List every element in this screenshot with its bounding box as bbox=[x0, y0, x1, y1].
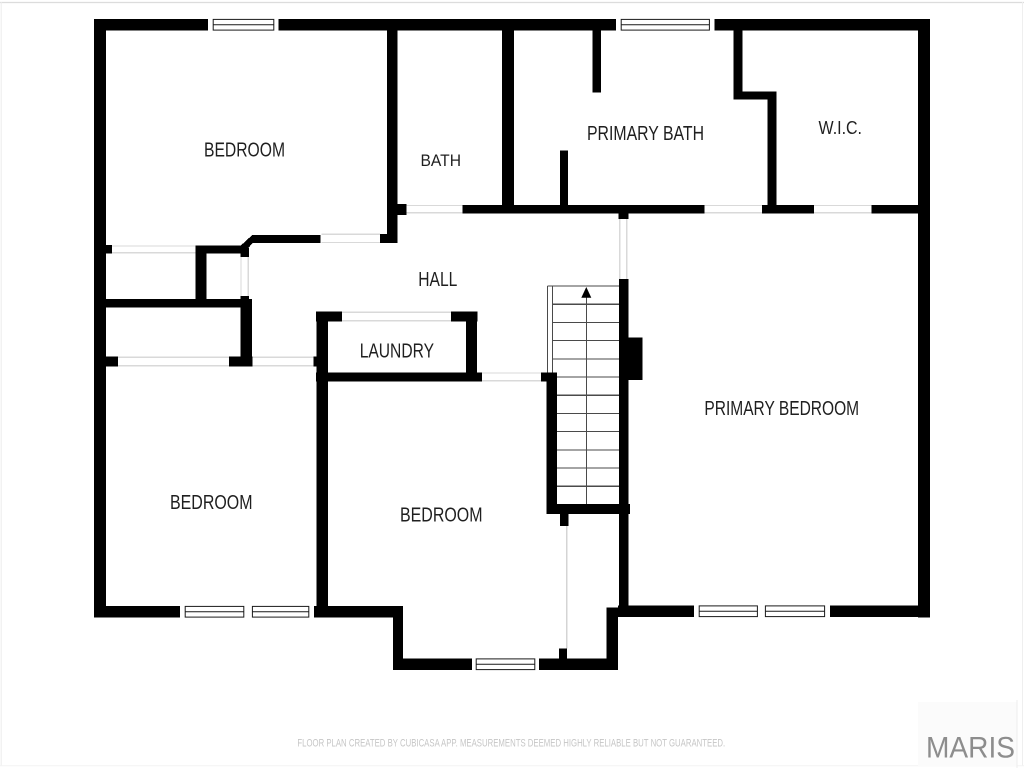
svg-text:BEDROOM: BEDROOM bbox=[170, 492, 253, 514]
svg-text:BATH: BATH bbox=[421, 151, 462, 170]
svg-text:LAUNDRY: LAUNDRY bbox=[360, 341, 434, 363]
svg-text:W.I.C.: W.I.C. bbox=[819, 118, 863, 138]
svg-text:MARIS: MARIS bbox=[926, 732, 1015, 765]
svg-text:FLOOR PLAN CREATED BY CUBICASA: FLOOR PLAN CREATED BY CUBICASA APP. MEAS… bbox=[297, 738, 725, 750]
svg-text:HALL: HALL bbox=[418, 269, 457, 291]
svg-text:PRIMARY BATH: PRIMARY BATH bbox=[587, 123, 704, 145]
svg-text:PRIMARY BEDROOM: PRIMARY BEDROOM bbox=[704, 398, 859, 420]
svg-text:BEDROOM: BEDROOM bbox=[204, 140, 285, 162]
svg-text:BEDROOM: BEDROOM bbox=[400, 505, 483, 527]
